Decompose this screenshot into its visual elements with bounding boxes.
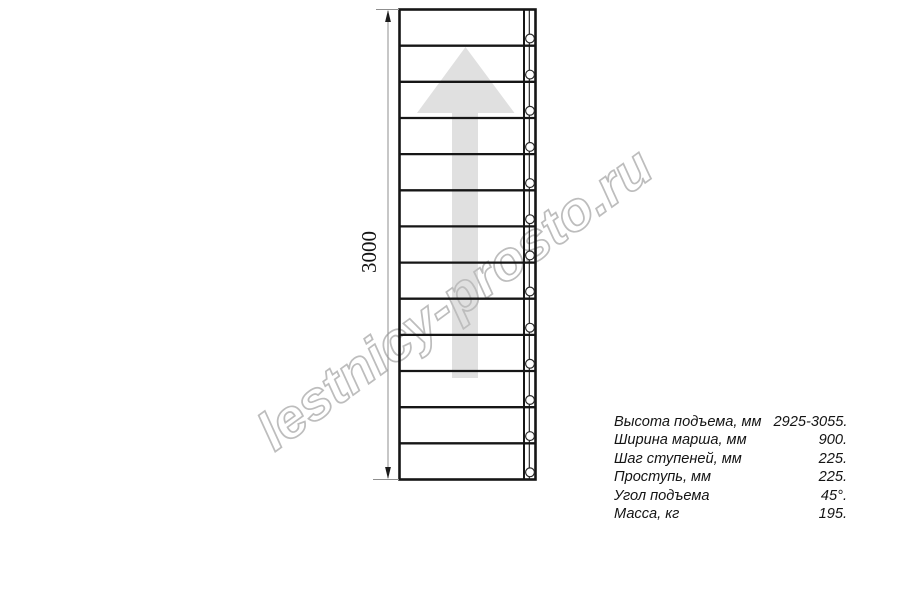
bolt-circle: [526, 70, 535, 79]
spec-label: Угол подъема: [614, 487, 709, 505]
spec-label: Ширина марша, мм: [614, 431, 747, 449]
bolt-circle: [526, 432, 535, 441]
spec-value: 225.: [819, 468, 847, 486]
bolt-circle: [526, 34, 535, 43]
bolt-circle: [526, 468, 535, 477]
spec-row: Ширина марша, мм 900.: [614, 431, 847, 449]
bolt-circle: [526, 359, 535, 368]
spec-label: Масса, кг: [614, 505, 679, 523]
bolt-circle: [526, 251, 535, 260]
spec-label: Высота подъема, мм: [614, 413, 762, 431]
bolt-circle: [526, 287, 535, 296]
page: lestnicy-prosto.ru 3000 Высота подъема, …: [0, 0, 900, 600]
spec-label: Шаг ступеней, мм: [614, 450, 742, 468]
spec-value: 45°.: [821, 487, 847, 505]
bolt-circle: [526, 179, 535, 188]
spec-row: Проступь, мм 225.: [614, 468, 847, 486]
specs-table: Высота подъема, мм 2925-3055. Ширина мар…: [614, 413, 847, 523]
dimension-arrow-down: [385, 467, 391, 479]
spec-value: 2925-3055.: [774, 413, 848, 431]
bolt-circle: [526, 143, 535, 152]
bolt-circle: [526, 215, 535, 224]
spec-value: 225.: [819, 450, 847, 468]
spec-row: Шаг ступеней, мм 225.: [614, 450, 847, 468]
bolt-circle: [526, 396, 535, 405]
spec-row: Масса, кг 195.: [614, 505, 847, 523]
spec-value: 900.: [819, 431, 847, 449]
bolt-circle: [526, 106, 535, 115]
dimension-arrow-up: [385, 10, 391, 22]
spec-value: 195.: [819, 505, 847, 523]
bolt-circles: [526, 34, 535, 477]
dimension-label: 3000: [357, 231, 381, 273]
spec-row: Угол подъема 45°.: [614, 487, 847, 505]
spec-row: Высота подъема, мм 2925-3055.: [614, 413, 847, 431]
bolt-circle: [526, 323, 535, 332]
spec-label: Проступь, мм: [614, 468, 711, 486]
dimension: 3000: [357, 10, 399, 480]
